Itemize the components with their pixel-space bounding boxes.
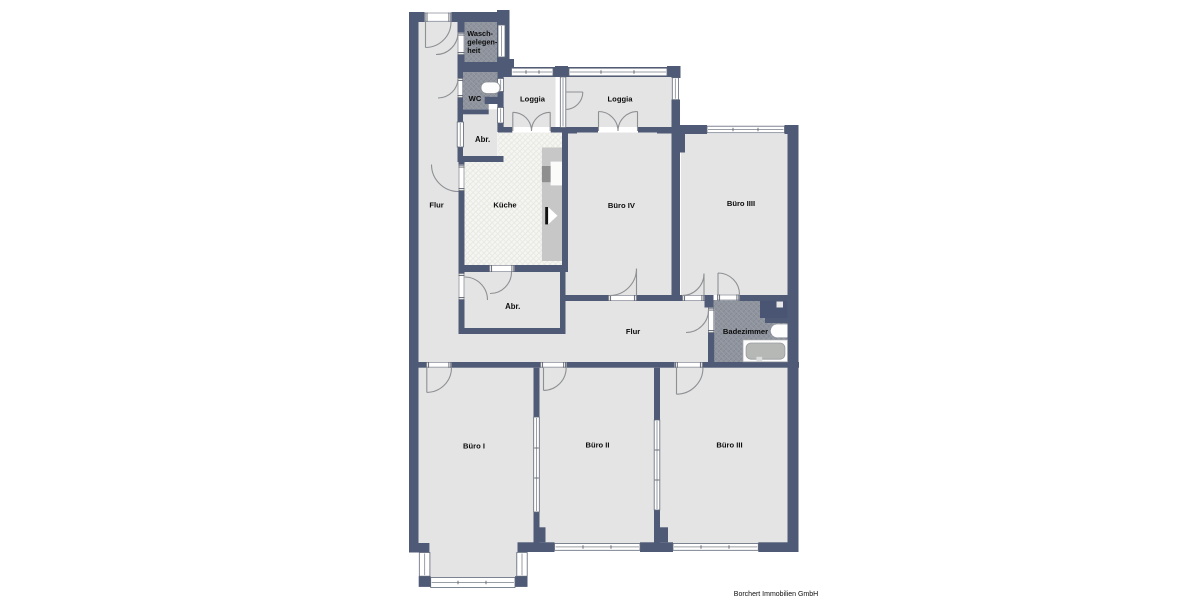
svg-text:Büro IV: Büro IV [608,201,636,210]
svg-text:Büro II: Büro II [585,441,609,450]
svg-text:heit: heit [467,46,481,55]
svg-text:Loggia: Loggia [608,95,634,104]
svg-text:Büro IIII: Büro IIII [727,199,755,208]
svg-text:Abr.: Abr. [475,135,490,144]
svg-text:Badezimmer: Badezimmer [723,327,768,336]
svg-text:Flur: Flur [429,201,443,210]
svg-text:Borchert Immobilien GmbH: Borchert Immobilien GmbH [734,591,818,598]
svg-text:Flur: Flur [626,327,640,336]
svg-text:Küche: Küche [493,200,516,209]
svg-text:Büro III: Büro III [716,441,742,450]
svg-text:WC: WC [469,94,482,103]
svg-text:Büro I: Büro I [463,442,485,451]
svg-text:Loggia: Loggia [520,95,546,104]
svg-text:Abr.: Abr. [505,302,520,311]
